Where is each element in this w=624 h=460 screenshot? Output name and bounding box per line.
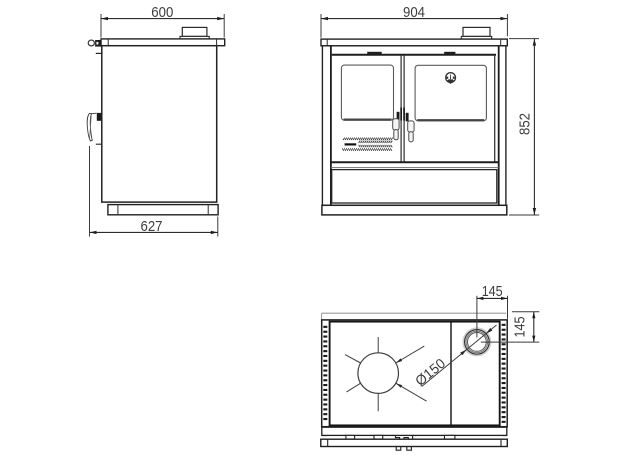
svg-text:145: 145	[482, 284, 503, 300]
svg-text:627: 627	[141, 218, 163, 235]
svg-text:852: 852	[516, 113, 533, 135]
svg-text:145: 145	[512, 317, 528, 338]
svg-text:904: 904	[403, 4, 425, 21]
svg-text:600: 600	[151, 4, 173, 21]
